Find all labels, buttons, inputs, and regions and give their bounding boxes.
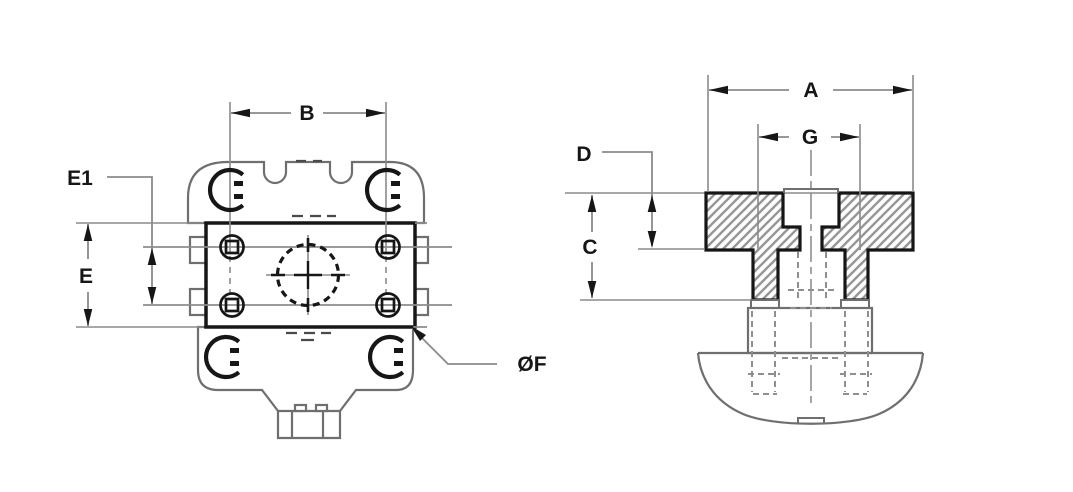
- section-halves: [706, 193, 913, 300]
- clip-slot-mark: [234, 194, 243, 199]
- arrowhead: [709, 86, 728, 95]
- section-view: A G D C: [565, 75, 923, 424]
- arrowhead: [840, 133, 859, 142]
- technical-drawing: B E1 E ØF: [0, 0, 1073, 492]
- leader-line: [602, 152, 652, 246]
- arrowhead: [148, 248, 157, 265]
- label-diameter-F: ØF: [411, 326, 547, 376]
- washer-step: [841, 300, 869, 308]
- dim-label-F: ØF: [517, 353, 546, 376]
- arrowhead: [231, 109, 250, 118]
- arrowhead: [588, 195, 597, 212]
- leader-line: [412, 328, 497, 364]
- clip-slot-mark: [394, 361, 403, 366]
- arrowhead: [648, 195, 657, 212]
- clip-slot-mark: [394, 348, 403, 353]
- extension-line: [76, 223, 203, 327]
- dim-label-D: D: [576, 143, 591, 166]
- hidden-dash-row: [748, 358, 872, 394]
- bracket-lower-lobe: [198, 327, 413, 438]
- washer-body: [748, 308, 872, 353]
- dim-label-E1: E1: [67, 167, 93, 190]
- leader-line: [107, 177, 152, 304]
- dim-label-C: C: [582, 236, 597, 259]
- washer-step: [751, 300, 779, 308]
- arrowhead: [648, 231, 657, 248]
- clip-slot-mark: [230, 361, 239, 366]
- front-view: B E1 E ØF: [67, 102, 547, 438]
- arrowhead: [148, 287, 157, 304]
- section-right-half: [822, 193, 913, 300]
- section-left-half: [706, 193, 800, 300]
- clip-slot-mark: [230, 348, 239, 353]
- arrowhead: [84, 309, 93, 326]
- arrowhead: [84, 224, 93, 241]
- arrowhead: [366, 109, 385, 118]
- dim-label-B: B: [299, 102, 314, 125]
- bottom-tab-bump: [316, 405, 327, 411]
- dim-label-E: E: [79, 265, 93, 288]
- clip-slot-mark: [391, 181, 400, 186]
- arrowhead: [588, 281, 597, 298]
- dim-label-G: G: [802, 126, 818, 149]
- dim-D: D: [576, 143, 704, 249]
- clip-slot-mark: [234, 181, 243, 186]
- dim-B: B: [231, 102, 385, 125]
- clip-slot-mark: [391, 194, 400, 199]
- dim-label-A: A: [803, 79, 818, 102]
- bottom-tab-bump: [295, 405, 306, 411]
- arrowhead: [759, 133, 778, 142]
- hidden-bore-wall: [798, 252, 826, 300]
- drawing-canvas: B E1 E ØF: [0, 0, 1073, 492]
- arrowhead: [893, 86, 912, 95]
- dim-E: E: [76, 223, 203, 327]
